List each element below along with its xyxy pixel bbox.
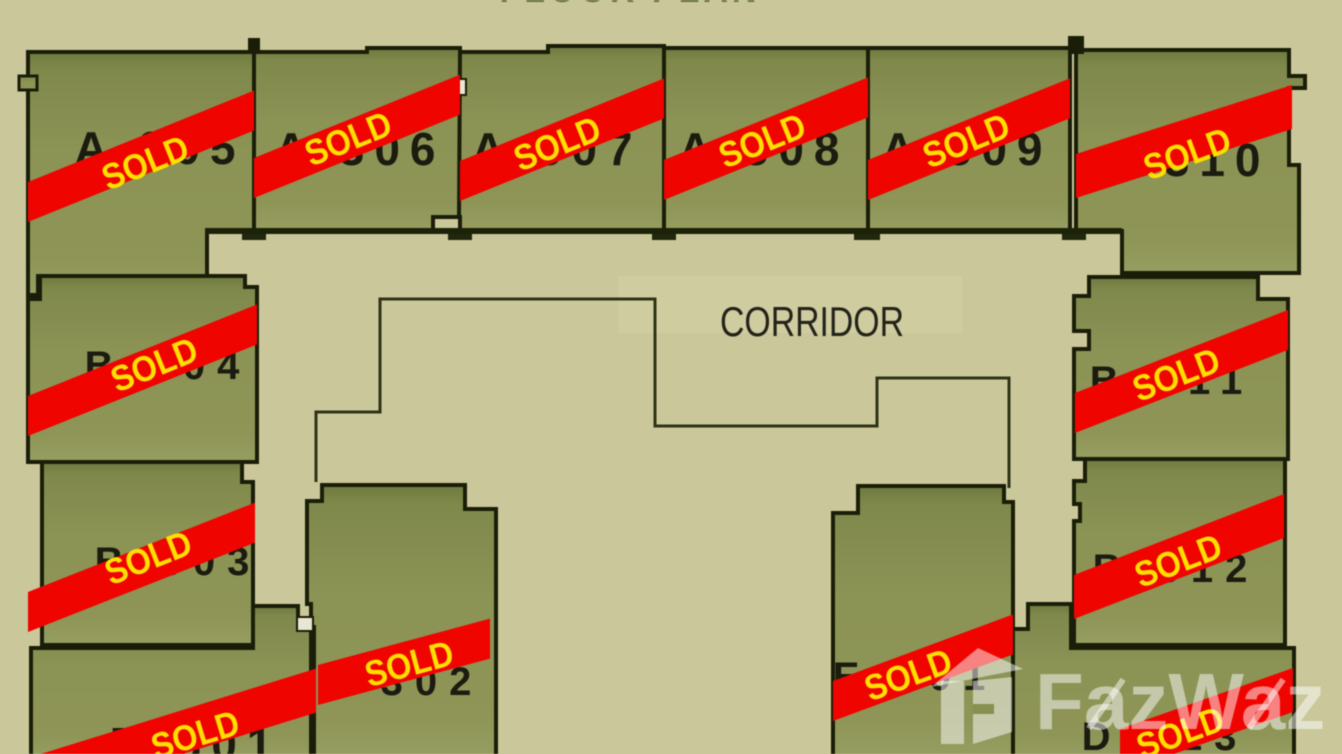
svg-text:CORRIDOR: CORRIDOR	[720, 298, 904, 345]
svg-text:FLOOR PLAN: FLOOR PLAN	[500, 0, 761, 10]
svg-text:FazWaz: FazWaz	[1035, 657, 1325, 746]
